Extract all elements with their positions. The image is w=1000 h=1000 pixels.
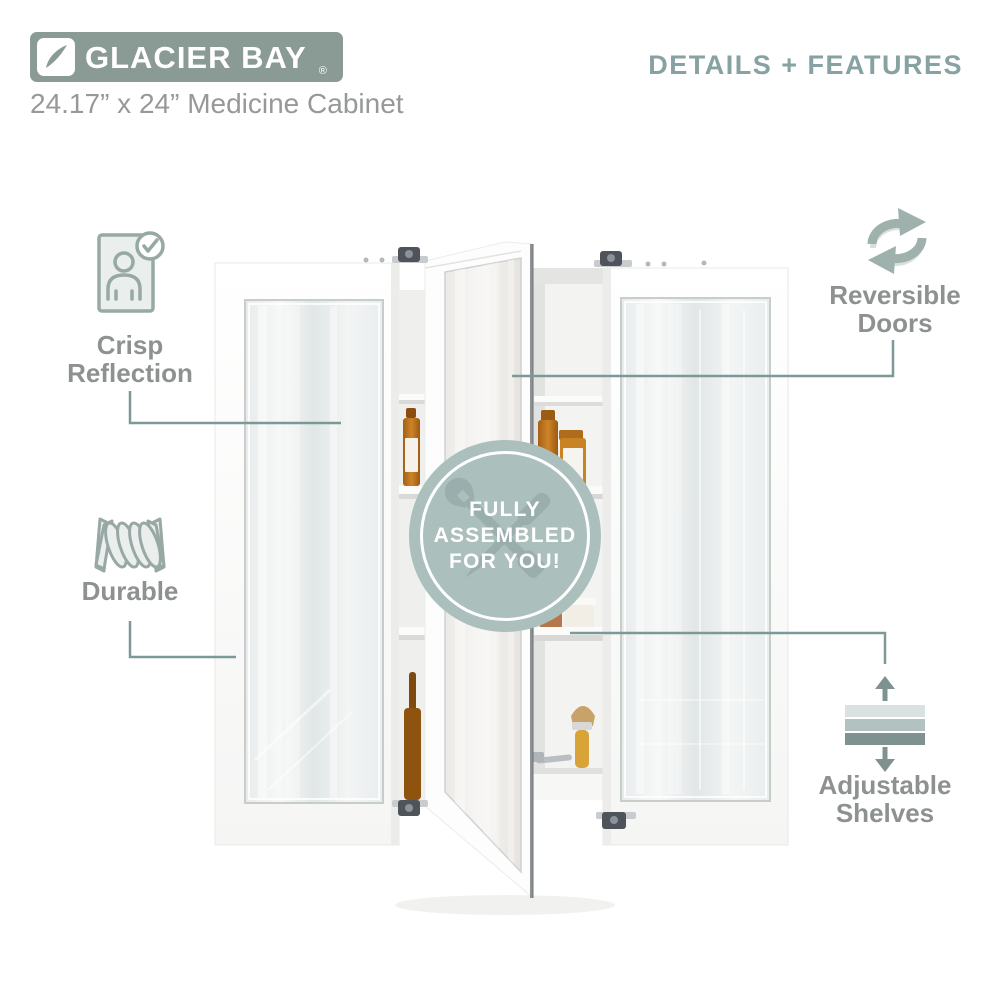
section-title: DETAILS + FEATURES: [648, 50, 963, 81]
coil-spring-icon: [90, 513, 170, 577]
feature-label-line: Reversible: [795, 281, 995, 309]
page: { "brand": { "name": "GLACIER BAY", "reg…: [0, 0, 1000, 1000]
feature-label-crisp-reflection: Crisp Reflection: [30, 331, 230, 387]
leaf-swoosh-icon: [37, 38, 75, 76]
badge-text-line: FOR YOU!: [449, 549, 561, 575]
feature-label-line: Crisp: [30, 331, 230, 359]
feature-label-reversible-doors: Reversible Doors: [795, 281, 995, 337]
feature-label-line: Shelves: [785, 799, 985, 827]
badge-text-line: FULLY: [469, 497, 541, 523]
left-mirror-door: [215, 263, 399, 845]
brand-name: GLACIER BAY: [85, 42, 307, 73]
mirror-person-check-icon: [95, 225, 165, 319]
badge-text-line: ASSEMBLED: [434, 523, 577, 549]
registered-mark: ®: [319, 65, 327, 77]
right-mirror-door: [603, 268, 788, 845]
feature-label-line: Doors: [795, 309, 995, 337]
shelves-arrows-icon: [843, 676, 927, 772]
feature-label-line: Durable: [30, 577, 230, 605]
fully-assembled-badge: FULLY ASSEMBLED FOR YOU!: [409, 440, 601, 632]
glacier-bay-logo: GLACIER BAY ®: [30, 32, 343, 82]
rotation-arrows-icon: [862, 204, 932, 278]
feature-label-line: Reflection: [30, 359, 230, 387]
feature-label-adjustable-shelves: Adjustable Shelves: [785, 771, 985, 827]
product-title: 24.17” x 24” Medicine Cabinet: [30, 88, 404, 120]
feature-label-line: Adjustable: [785, 771, 985, 799]
feature-label-durable: Durable: [30, 577, 230, 605]
